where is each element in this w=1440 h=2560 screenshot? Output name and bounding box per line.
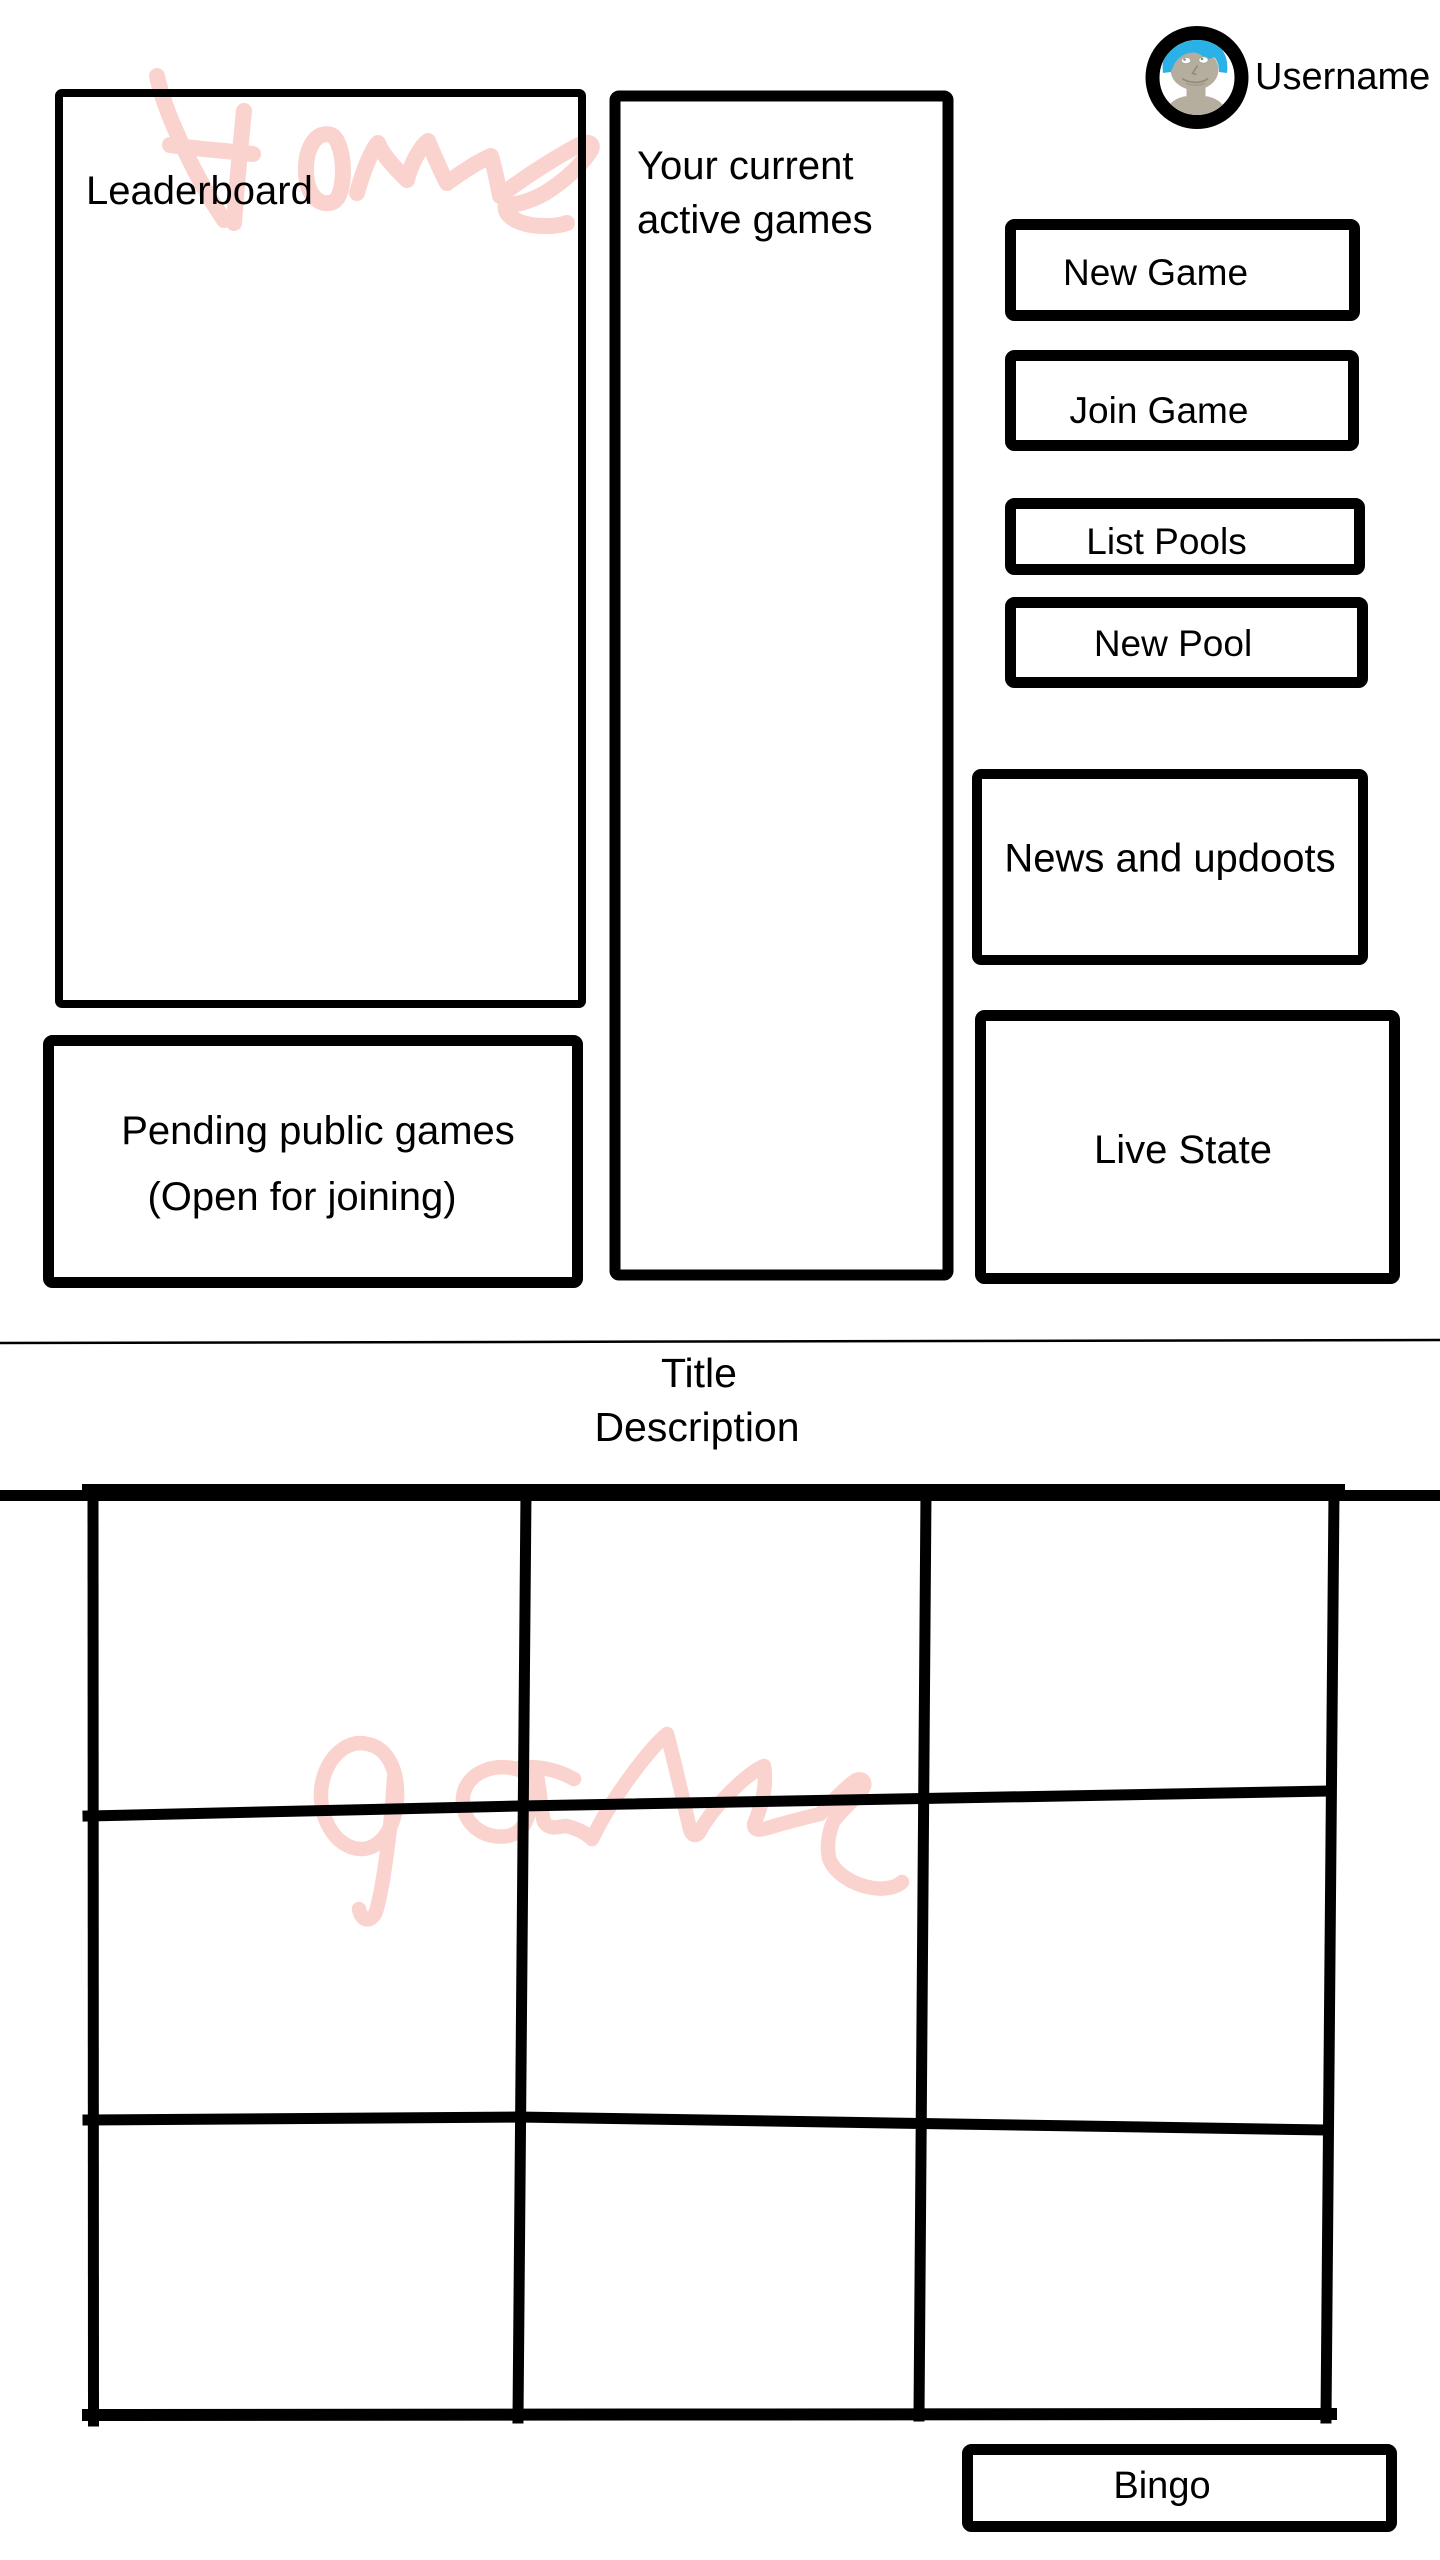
svg-text:Leaderboard: Leaderboard: [86, 169, 313, 213]
svg-text:Username: Username: [1255, 56, 1430, 98]
svg-text:active games: active games: [637, 198, 873, 242]
svg-text:Pending public games: Pending public games: [121, 1109, 515, 1153]
svg-text:Description: Description: [594, 1404, 799, 1450]
svg-text:News and updoots: News and updoots: [1004, 837, 1335, 881]
svg-text:Bingo: Bingo: [1113, 2465, 1210, 2507]
svg-text:Your current: Your current: [637, 144, 853, 188]
svg-text:New Game: New Game: [1063, 252, 1248, 293]
svg-text:Title: Title: [661, 1350, 737, 1396]
svg-text:Join Game: Join Game: [1070, 390, 1249, 431]
svg-text:List Pools: List Pools: [1086, 521, 1246, 562]
svg-text:(Open for joining): (Open for joining): [147, 1175, 456, 1219]
svg-text:Live State: Live State: [1094, 1128, 1272, 1172]
svg-text:New Pool: New Pool: [1094, 623, 1252, 664]
